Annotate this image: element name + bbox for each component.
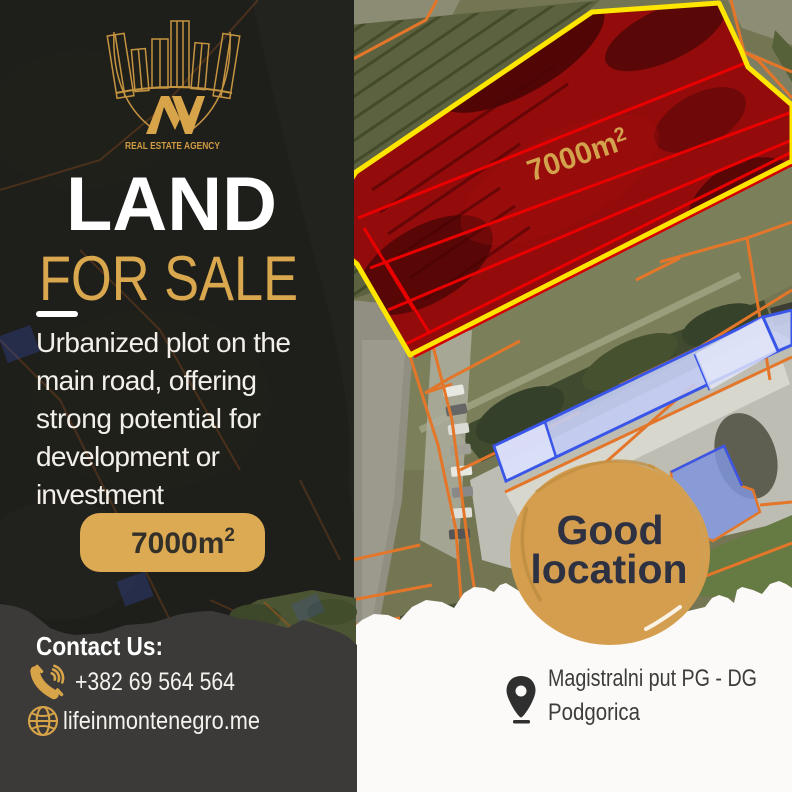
svg-text:investment: investment bbox=[36, 479, 164, 510]
svg-text:REAL ESTATE AGENCY: REAL ESTATE AGENCY bbox=[125, 141, 220, 152]
svg-text:LAND: LAND bbox=[66, 162, 277, 247]
svg-text:Contact Us:: Contact Us: bbox=[36, 631, 163, 661]
svg-text:location: location bbox=[530, 546, 687, 592]
svg-text:lifeinmontenegro.me: lifeinmontenegro.me bbox=[63, 707, 260, 735]
svg-text:+382 69 564 564: +382 69 564 564 bbox=[75, 668, 235, 696]
svg-text:FOR SALE: FOR SALE bbox=[39, 244, 298, 314]
svg-text:Magistralni put PG - DG: Magistralni put PG - DG bbox=[548, 665, 757, 692]
svg-text:Podgorica: Podgorica bbox=[548, 699, 641, 726]
svg-text:7000m2: 7000m2 bbox=[131, 525, 235, 560]
svg-text:development or: development or bbox=[36, 441, 220, 472]
svg-text:strong potential for: strong potential for bbox=[36, 403, 261, 434]
svg-text:Urbanized plot on the: Urbanized plot on the bbox=[36, 327, 291, 358]
svg-text:main road, offering: main road, offering bbox=[36, 365, 257, 396]
